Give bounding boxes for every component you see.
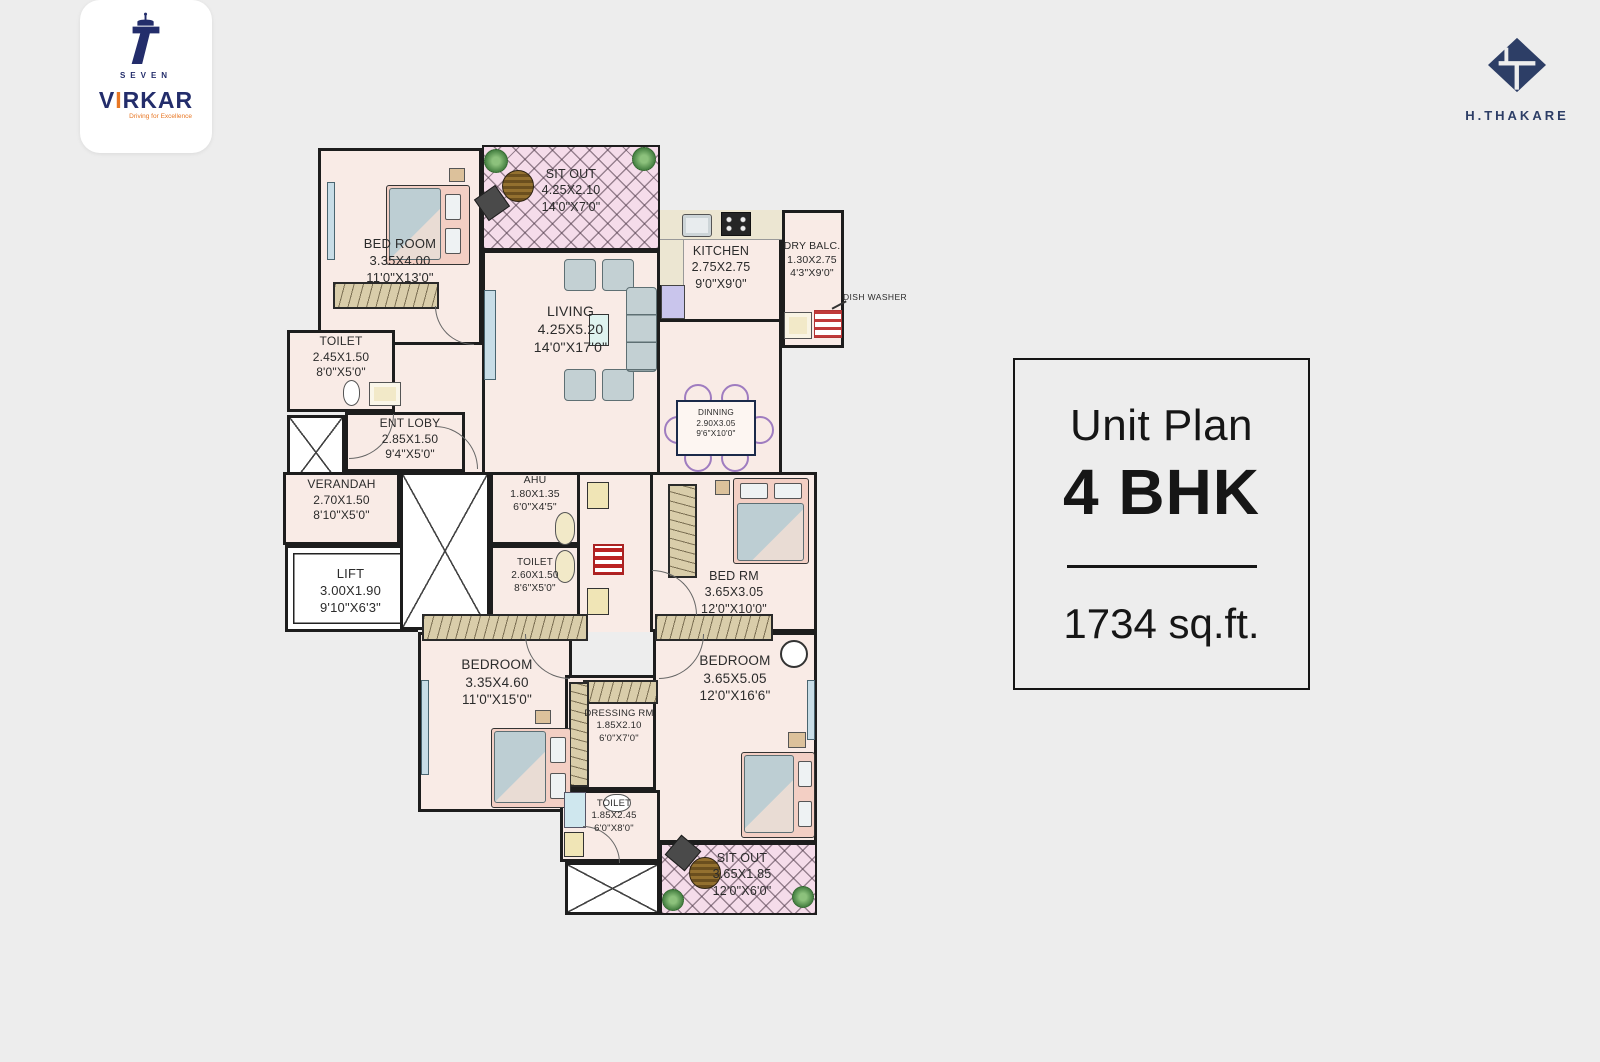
room-label-toilet-tl: TOILET 2.45X1.50 8'0"X5'0" — [291, 334, 391, 381]
thakare-name: H.THAKARE — [1465, 108, 1569, 123]
dishwasher-label: DISH WASHER — [843, 292, 935, 302]
wardrobe-dressing-top — [583, 680, 658, 704]
room-label-sitout-top: SIT OUT 4.25X2.10 14'0"X7'0" — [515, 166, 627, 215]
room-label-ahu: AHU 1.80X1.35 6'0"X4'5" — [493, 474, 577, 515]
nightstand — [715, 480, 730, 495]
door-panel — [564, 832, 584, 857]
dishwasher — [814, 310, 842, 338]
room-dim-m: 1.80X1.35 — [493, 488, 577, 502]
room-label-dressing: DRESSING RM 1.85X2.10 6'0"X7'0" — [579, 708, 659, 745]
virkar-brand-name: VIRKAR — [99, 89, 193, 112]
room-dim-m: 1.85X2.10 — [579, 720, 659, 732]
room-name: VERANDAH — [289, 477, 394, 493]
room-dim-m: 2.75X2.75 — [665, 259, 777, 275]
page: { "page": {"background": "#ededed"}, "br… — [0, 0, 1600, 1062]
room-name: AHU — [493, 474, 577, 488]
virkar-tower-icon — [123, 12, 169, 70]
bed-bedroom-bl — [491, 728, 571, 808]
plant — [632, 147, 656, 171]
room-dim-m: 2.70X1.50 — [289, 493, 394, 509]
room-dim-ft: 6'0"X8'0" — [573, 823, 655, 835]
room-label-kitchen: KITCHEN 2.75X2.75 9'0"X9'0" — [665, 243, 777, 292]
room-dim-m: 4.25X2.10 — [515, 182, 627, 198]
kitchen-sink — [682, 214, 712, 237]
plant — [484, 149, 508, 173]
room-dim-ft: 14'0"X7'0" — [515, 199, 627, 215]
room-dim-m: 3.35X4.60 — [431, 674, 563, 692]
room-label-sitout-bottom: SIT OUT 3.65X1.85 12'0"X6'0" — [681, 850, 803, 899]
armchair — [602, 369, 634, 401]
virkar-seven-label: SEVEN — [120, 71, 172, 80]
room-label-dry-balcony: DRY BALC. 1.30X2.75 4'3"X9'0" — [777, 240, 847, 281]
room-dim-ft: 6'0"X7'0" — [579, 733, 659, 745]
window-bedroom-bl — [421, 680, 429, 775]
virkar-name-rest: RKAR — [123, 87, 193, 113]
room-dim-m: 2.45X1.50 — [291, 350, 391, 366]
wardrobe-bedrm-right — [668, 484, 697, 578]
room-dim-ft: 9'6"X10'0" — [678, 429, 754, 440]
room-name: DRESSING RM — [579, 708, 659, 720]
pillow — [740, 483, 768, 499]
nightstand — [788, 732, 806, 748]
stove — [721, 212, 751, 236]
room-dim-ft: 9'0"X9'0" — [665, 276, 777, 292]
room-dim-ft: 11'0"X15'0" — [431, 691, 563, 709]
room-dim-ft: 8'0"X5'0" — [291, 365, 391, 381]
room-dim-ft: 9'4"X5'0" — [355, 447, 465, 463]
door-panel — [587, 482, 609, 509]
room-name: SIT OUT — [681, 850, 803, 866]
room-name: TOILET — [492, 556, 578, 569]
room-name: LIFT — [298, 566, 403, 583]
room-dim-m: 3.65X3.05 — [678, 584, 790, 600]
room-dim-m: 3.35X4.00 — [330, 253, 470, 270]
room-dim-m: 2.90X3.05 — [678, 419, 754, 430]
room-dim-m: 4.25X5.20 — [488, 320, 653, 338]
thakare-house-icon — [1486, 36, 1548, 94]
unit-info-panel: Unit Plan 4 BHK 1734 sq.ft. — [1013, 358, 1310, 690]
thakare-logo: H.THAKARE — [1442, 36, 1592, 123]
duct-bottom — [565, 862, 660, 915]
room-name: KITCHEN — [665, 243, 777, 259]
room-dim-ft: 12'0"X16'6" — [661, 687, 809, 705]
room-name: ENT LOBY — [355, 416, 465, 432]
room-label-living: LIVING 4.25X5.20 14'0"X17'0" — [488, 302, 653, 357]
room-name: BEDROOM — [661, 652, 809, 670]
room-name: DINNING — [678, 408, 754, 419]
room-dim-ft: 14'0"X17'0" — [488, 338, 653, 356]
nightstand — [535, 710, 551, 724]
washbasin — [555, 512, 575, 545]
room-name: SIT OUT — [515, 166, 627, 182]
pillow — [445, 194, 461, 220]
unit-type: 4 BHK — [1063, 455, 1260, 529]
bed-bedrm-right — [733, 478, 809, 564]
room-label-verandah: VERANDAH 2.70X1.50 8'10"X5'0" — [289, 477, 394, 524]
virkar-name-i: I — [115, 87, 122, 113]
mattress — [744, 755, 794, 833]
room-dim-ft: 8'10"X5'0" — [289, 508, 394, 524]
room-dim-m: 1.30X2.75 — [777, 254, 847, 268]
room-label-entrance-lobby: ENT LOBY 2.85X1.50 9'4"X5'0" — [355, 416, 465, 463]
wc — [343, 380, 360, 406]
room-label-bedroom-tl: BED ROOM 3.35X4.00 11'0"X13'0" — [330, 236, 470, 287]
virkar-name-v: V — [99, 87, 115, 113]
pillow — [798, 761, 812, 787]
bed-bedroom-br — [741, 752, 815, 838]
room-label-bedroom-bl: BEDROOM 3.35X4.60 11'0"X15'0" — [431, 656, 563, 709]
virkar-tagline: Driving for Excellence — [100, 113, 192, 120]
room-label-lift: LIFT 3.00X1.90 9'10"X6'3" — [298, 566, 403, 617]
room-dim-ft: 9'10"X6'3" — [298, 600, 403, 617]
dining-table: DINNING 2.90X3.05 9'6"X10'0" — [676, 400, 756, 456]
mattress — [494, 731, 546, 803]
room-name: BED RM — [678, 568, 790, 584]
utility-sink — [784, 312, 812, 339]
pillow — [774, 483, 802, 499]
room-label-dining: DINNING 2.90X3.05 9'6"X10'0" — [678, 408, 754, 440]
floor-plan: DINNING 2.90X3.05 9'6"X10'0" DISH WASHER — [283, 140, 928, 925]
room-dim-m: 2.85X1.50 — [355, 432, 465, 448]
room-label-toilet-mid: TOILET 2.60X1.50 8'6"X5'0" — [492, 556, 578, 595]
room-dim-ft: 12'0"X6'0" — [681, 883, 803, 899]
room-name: TOILET — [573, 798, 655, 810]
room-dim-m: 3.65X1.85 — [681, 866, 803, 882]
room-name: BED ROOM — [330, 236, 470, 253]
washbasin — [369, 382, 401, 406]
door-panel — [587, 588, 609, 615]
stair-duct — [400, 472, 490, 630]
room-dim-m: 3.65X5.05 — [661, 670, 809, 688]
laundry-rack — [593, 544, 624, 575]
room-dim-ft: 11'0"X13'0" — [330, 270, 470, 287]
room-label-toilet-bottom: TOILET 1.85X2.45 6'0"X8'0" — [573, 798, 655, 835]
unit-plan-title: Unit Plan — [1070, 401, 1253, 451]
armchair — [564, 369, 596, 401]
room-name: TOILET — [291, 334, 391, 350]
room-dim-m: 3.00X1.90 — [298, 583, 403, 600]
room-dim-m: 1.85X2.45 — [573, 810, 655, 822]
armchair — [564, 259, 596, 291]
pillow — [798, 801, 812, 827]
unit-area: 1734 sq.ft. — [1063, 600, 1259, 648]
mattress — [737, 503, 804, 561]
divider — [1067, 565, 1257, 568]
nightstand — [449, 168, 465, 182]
room-label-bedrm-right: BED RM 3.65X3.05 12'0"X10'0" — [678, 568, 790, 617]
room-label-bedroom-br: BEDROOM 3.65X5.05 12'0"X16'6" — [661, 652, 809, 705]
pillow — [550, 737, 566, 763]
room-name: BEDROOM — [431, 656, 563, 674]
room-name: DRY BALC. — [777, 240, 847, 254]
room-dim-ft: 4'3"X9'0" — [777, 267, 847, 281]
room-name: LIVING — [488, 302, 653, 320]
room-dim-ft: 8'6"X5'0" — [492, 582, 578, 595]
room-dim-ft: 12'0"X10'0" — [678, 601, 790, 617]
room-dim-m: 2.60X1.50 — [492, 569, 578, 582]
room-dim-ft: 6'0"X4'5" — [493, 501, 577, 515]
virkar-logo-card: SEVEN VIRKAR Driving for Excellence — [80, 0, 212, 153]
